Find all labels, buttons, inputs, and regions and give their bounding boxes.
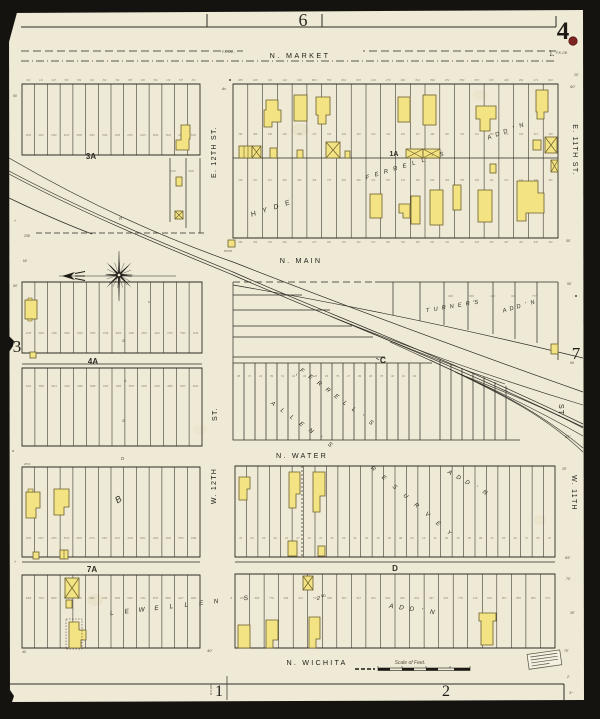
svg-text:09: 09 <box>273 536 277 540</box>
svg-text:784: 784 <box>327 78 332 82</box>
svg-text:537: 537 <box>179 79 184 82</box>
svg-text:527: 527 <box>356 596 361 600</box>
svg-text:C: C <box>380 355 386 365</box>
svg-text:ST.: ST. <box>557 404 564 418</box>
svg-text:957: 957 <box>502 596 507 600</box>
svg-text:810: 810 <box>283 179 288 182</box>
svg-text:534: 534 <box>77 79 82 82</box>
svg-text:50': 50' <box>567 282 572 286</box>
svg-text:346: 346 <box>283 133 288 136</box>
svg-text:33: 33 <box>303 374 307 378</box>
svg-text:49: 49 <box>445 536 449 540</box>
svg-text:+: + <box>14 560 16 564</box>
svg-text:338: 338 <box>549 133 554 136</box>
svg-text:4: 4 <box>557 18 570 45</box>
svg-text:208: 208 <box>474 179 480 182</box>
svg-text:7543: 7543 <box>180 332 186 335</box>
svg-text:801: 801 <box>298 179 303 182</box>
svg-text:4823: 4823 <box>180 385 186 388</box>
svg-text:770: 770 <box>458 596 463 600</box>
svg-text:7816: 7816 <box>166 134 172 137</box>
svg-text:Av: Av <box>221 87 226 91</box>
svg-text:3158: 3158 <box>103 332 109 335</box>
svg-text:2351: 2351 <box>126 134 133 137</box>
svg-text:822: 822 <box>548 78 553 82</box>
svg-text:139: 139 <box>166 79 171 82</box>
svg-text:S: S <box>122 338 125 343</box>
svg-text:0805: 0805 <box>191 597 197 600</box>
svg-text:106: 106 <box>519 133 524 136</box>
svg-text:131: 131 <box>39 79 44 82</box>
svg-text:3A: 3A <box>86 152 96 161</box>
svg-text:991: 991 <box>327 241 332 244</box>
svg-text:89: 89 <box>270 374 274 378</box>
svg-text:20': 20' <box>561 467 567 471</box>
svg-text:687: 687 <box>386 179 391 182</box>
svg-text:247: 247 <box>252 179 258 182</box>
svg-text:634: 634 <box>487 596 492 600</box>
svg-text:29: 29 <box>341 536 346 540</box>
svg-text:96: 96 <box>399 536 403 540</box>
svg-text:564: 564 <box>154 79 159 82</box>
svg-text:8908: 8908 <box>77 134 83 137</box>
svg-text:0366: 0366 <box>191 537 197 540</box>
svg-text:01: 01 <box>402 374 406 378</box>
svg-text:6417: 6417 <box>178 597 184 600</box>
svg-text:N. WICHITA: N. WICHITA <box>287 658 348 667</box>
svg-text:391: 391 <box>519 78 524 82</box>
svg-text:015: 015 <box>489 78 494 82</box>
svg-text:00: 00 <box>251 536 255 540</box>
svg-text:182: 182 <box>460 241 465 244</box>
svg-text:23: 23 <box>284 536 289 540</box>
svg-text:s: s <box>148 300 150 304</box>
svg-text:192: 192 <box>90 79 95 82</box>
svg-text:549: 549 <box>385 596 390 600</box>
svg-text:6629: 6629 <box>193 385 199 388</box>
svg-text:51: 51 <box>281 374 285 378</box>
svg-text:052: 052 <box>549 241 554 244</box>
svg-text:784: 784 <box>401 241 406 244</box>
svg-text:3166: 3166 <box>166 537 172 540</box>
svg-text:E. 11TH ST.: E. 11TH ST. <box>571 124 578 176</box>
svg-text:4656: 4656 <box>167 385 173 388</box>
svg-text:5982: 5982 <box>64 332 70 335</box>
svg-text:1: 1 <box>215 683 223 700</box>
svg-text:837: 837 <box>444 596 449 600</box>
svg-text:5876: 5876 <box>178 537 184 540</box>
svg-text:7A: 7A <box>87 565 97 574</box>
svg-text:N. WATER: N. WATER <box>276 451 328 460</box>
svg-text:91: 91 <box>353 536 357 540</box>
svg-text:14: 14 <box>259 374 263 378</box>
svg-text:602: 602 <box>342 179 347 182</box>
svg-text:034: 034 <box>26 79 31 82</box>
svg-text:628: 628 <box>240 596 245 600</box>
svg-text:669: 669 <box>312 78 317 82</box>
svg-text:0733: 0733 <box>167 332 173 335</box>
svg-text:542: 542 <box>386 241 391 244</box>
svg-text:776: 776 <box>269 596 274 600</box>
svg-text:6159: 6159 <box>141 385 147 388</box>
svg-text:F.K.Off..: F.K.Off.. <box>556 51 569 55</box>
svg-text:63: 63 <box>411 536 415 540</box>
svg-text:234: 234 <box>400 179 406 182</box>
svg-text:86: 86 <box>479 536 483 540</box>
svg-text:3~: 3~ <box>569 690 574 695</box>
svg-text:995: 995 <box>511 294 516 298</box>
svg-text:122: 122 <box>282 78 287 82</box>
svg-text:27: 27 <box>295 536 300 540</box>
svg-text:009: 009 <box>445 179 450 182</box>
svg-text:60': 60' <box>13 284 18 288</box>
svg-text:4060: 4060 <box>116 385 122 388</box>
svg-text:353: 353 <box>268 241 273 244</box>
svg-text:76: 76 <box>380 374 384 378</box>
svg-text:47.9: 47.9 <box>24 462 30 466</box>
svg-text:710: 710 <box>268 78 273 82</box>
svg-text:311: 311 <box>475 133 479 136</box>
svg-text:965: 965 <box>238 78 243 82</box>
svg-text:70': 70' <box>566 577 571 581</box>
svg-text:6537: 6537 <box>153 597 159 600</box>
svg-text:801: 801 <box>341 78 346 82</box>
svg-text:R.K.Off...: R.K.Off... <box>209 682 213 695</box>
svg-text:69: 69 <box>358 374 362 378</box>
svg-text:2940: 2940 <box>63 385 70 388</box>
svg-text:3: 3 <box>13 337 22 356</box>
svg-text:8317: 8317 <box>38 537 44 540</box>
svg-text:098: 098 <box>342 133 347 136</box>
svg-text:1693: 1693 <box>103 385 109 388</box>
svg-text:489: 489 <box>253 133 258 136</box>
svg-text:8687: 8687 <box>77 537 83 540</box>
svg-text:814: 814 <box>415 78 420 82</box>
svg-text:5148: 5148 <box>154 385 160 388</box>
svg-text:3036: 3036 <box>193 332 199 335</box>
svg-text:F.K.Off...: F.K.Off... <box>222 50 236 54</box>
svg-text:831: 831 <box>414 596 419 600</box>
svg-text:40: 40 <box>22 650 26 654</box>
svg-text:713: 713 <box>312 133 317 136</box>
svg-text:258: 258 <box>23 234 30 238</box>
svg-text:32: 32 <box>391 374 395 378</box>
svg-text:945: 945 <box>284 596 289 600</box>
svg-text:70': 70' <box>564 649 569 653</box>
svg-text:449: 449 <box>475 241 480 244</box>
svg-text:45: 45 <box>331 536 335 540</box>
svg-text:726: 726 <box>238 179 243 182</box>
svg-text:513: 513 <box>371 241 376 244</box>
svg-text:183: 183 <box>342 241 347 244</box>
svg-text:51: 51 <box>491 536 495 540</box>
svg-text:309: 309 <box>416 179 421 182</box>
svg-text:A: A <box>388 603 394 611</box>
svg-text:3218: 3218 <box>38 134 44 137</box>
svg-text:430: 430 <box>504 78 509 82</box>
svg-text:030: 030 <box>141 79 146 82</box>
svg-text:347: 347 <box>416 133 421 136</box>
svg-text:2654: 2654 <box>114 134 121 137</box>
svg-text:996: 996 <box>327 596 332 600</box>
svg-text:980: 980 <box>416 241 421 244</box>
svg-text:5053: 5053 <box>90 332 96 335</box>
svg-text:S: S <box>122 418 125 423</box>
svg-text:63: 63 <box>413 374 417 378</box>
svg-text:W. 11TH: W. 11TH <box>570 475 577 511</box>
svg-text:647: 647 <box>52 79 57 82</box>
svg-text:19: 19 <box>376 536 380 540</box>
svg-text:606: 606 <box>357 179 362 182</box>
svg-text:03: 03 <box>325 374 329 378</box>
svg-text:0133: 0133 <box>64 134 70 137</box>
svg-text:1043: 1043 <box>26 134 32 137</box>
svg-text:913: 913 <box>504 179 509 182</box>
svg-text:832: 832 <box>103 79 108 82</box>
svg-text:30': 30' <box>570 611 575 615</box>
svg-text:31: 31 <box>239 536 243 540</box>
svg-text:17: 17 <box>347 374 351 378</box>
svg-text:4238: 4238 <box>170 170 176 173</box>
svg-text:6688: 6688 <box>51 597 57 600</box>
svg-text:60': 60' <box>570 84 575 89</box>
svg-text:382: 382 <box>430 133 435 136</box>
svg-text:4278: 4278 <box>26 332 32 335</box>
svg-text:71: 71 <box>525 536 529 540</box>
svg-text:699: 699 <box>238 241 243 244</box>
svg-text:65': 65' <box>565 555 570 560</box>
svg-text:19: 19 <box>422 536 426 540</box>
svg-text:+: + <box>14 219 16 223</box>
svg-text:7298: 7298 <box>102 597 108 600</box>
svg-text:788: 788 <box>460 179 465 182</box>
svg-text:7940: 7940 <box>102 134 108 137</box>
svg-text:8496: 8496 <box>188 170 194 173</box>
svg-text:24: 24 <box>364 536 369 540</box>
svg-text:38: 38 <box>237 374 241 378</box>
svg-text:3863: 3863 <box>89 134 95 137</box>
svg-text:1A: 1A <box>390 151 399 158</box>
svg-text:1965: 1965 <box>77 385 83 388</box>
svg-text:518: 518 <box>401 133 406 136</box>
svg-text:672: 672 <box>192 79 197 82</box>
svg-text:4216: 4216 <box>154 332 160 335</box>
svg-text:65: 65 <box>536 536 540 540</box>
svg-text:367: 367 <box>429 596 434 600</box>
svg-text:a: a <box>12 449 14 453</box>
svg-text:436: 436 <box>490 294 495 298</box>
svg-text:121: 121 <box>490 179 495 182</box>
svg-text:0162: 0162 <box>127 597 133 600</box>
svg-text:482: 482 <box>401 78 406 82</box>
svg-text:19: 19 <box>308 536 312 540</box>
svg-text:06: 06 <box>513 536 517 540</box>
svg-text:2: 2 <box>442 683 450 700</box>
svg-text:37: 37 <box>319 536 323 540</box>
svg-text:376: 376 <box>460 133 465 136</box>
svg-text:317: 317 <box>268 179 273 182</box>
svg-text:20': 20' <box>573 73 579 77</box>
svg-text:9096: 9096 <box>26 597 32 600</box>
svg-text:842: 842 <box>357 241 362 244</box>
svg-text:6801: 6801 <box>39 332 45 335</box>
svg-text:893: 893 <box>430 78 435 82</box>
svg-text:328: 328 <box>253 78 258 82</box>
svg-text:315: 315 <box>327 133 332 136</box>
svg-text:8835: 8835 <box>129 385 135 388</box>
svg-text:60: 60 <box>13 94 17 98</box>
svg-text:854: 854 <box>253 241 258 244</box>
svg-text:W. 12TH: W. 12TH <box>211 468 218 504</box>
svg-text:507: 507 <box>342 596 347 600</box>
svg-text:143: 143 <box>473 596 478 600</box>
svg-text:782: 782 <box>238 133 243 136</box>
svg-text:354: 354 <box>371 596 376 600</box>
svg-text:4A: 4A <box>88 357 98 366</box>
svg-text:5698: 5698 <box>90 385 96 388</box>
svg-text:5812: 5812 <box>140 537 146 540</box>
svg-text:691: 691 <box>297 78 302 82</box>
svg-text:31: 31 <box>433 536 437 540</box>
svg-text:841: 841 <box>430 241 435 244</box>
svg-text:19: 19 <box>456 536 460 540</box>
svg-text:2563: 2563 <box>140 332 147 335</box>
svg-text:5564: 5564 <box>166 597 172 600</box>
svg-text:3471: 3471 <box>115 537 121 540</box>
svg-text:513: 513 <box>534 133 539 136</box>
svg-text:474: 474 <box>371 179 376 182</box>
svg-text:'S: 'S <box>473 300 479 307</box>
svg-text:6204: 6204 <box>77 332 83 335</box>
svg-text:241: 241 <box>444 241 450 244</box>
svg-text:640: 640 <box>534 241 539 244</box>
svg-text:9579: 9579 <box>64 537 70 540</box>
svg-text:525: 525 <box>65 79 70 82</box>
svg-text:578: 578 <box>298 133 303 136</box>
svg-text:146: 146 <box>371 78 376 82</box>
svg-text:957: 957 <box>474 78 479 82</box>
svg-text:480: 480 <box>400 596 405 600</box>
svg-text:65': 65' <box>565 434 570 439</box>
svg-text:310: 310 <box>386 133 391 136</box>
svg-text:72: 72 <box>248 374 252 378</box>
svg-text:34: 34 <box>292 374 296 378</box>
svg-text:462: 462 <box>283 241 288 244</box>
svg-text:N. MAIN: N. MAIN <box>280 256 323 265</box>
svg-text:1615: 1615 <box>140 134 146 137</box>
svg-text:764: 764 <box>115 79 120 82</box>
svg-text:6562: 6562 <box>89 597 95 600</box>
svg-text:D: D <box>392 564 398 573</box>
svg-text:ND: ND <box>321 594 326 598</box>
svg-text:997: 997 <box>445 133 450 136</box>
svg-text:E. 12TH ST.: E. 12TH ST. <box>211 126 218 178</box>
svg-text:40': 40' <box>207 648 212 653</box>
svg-text:171: 171 <box>533 78 538 82</box>
svg-text:3487: 3487 <box>102 537 108 540</box>
svg-text:475: 475 <box>298 241 303 244</box>
svg-text:638: 638 <box>268 133 273 136</box>
svg-text:805: 805 <box>430 179 435 182</box>
svg-text:777: 777 <box>532 294 537 298</box>
svg-text:2260: 2260 <box>128 332 135 335</box>
svg-text:685: 685 <box>531 596 536 600</box>
svg-text:85: 85 <box>502 536 506 540</box>
svg-text:393: 393 <box>357 133 362 136</box>
svg-text:835: 835 <box>128 79 133 82</box>
svg-text:7204: 7204 <box>140 597 146 600</box>
svg-text:804: 804 <box>469 294 474 298</box>
svg-text:091: 091 <box>549 179 554 182</box>
svg-text:Scale of Feet.: Scale of Feet. <box>395 660 426 666</box>
svg-text:574: 574 <box>545 596 550 600</box>
svg-text:5414: 5414 <box>26 385 32 388</box>
svg-text:05: 05 <box>468 536 472 540</box>
svg-text:270: 270 <box>385 78 391 82</box>
svg-text:7054: 7054 <box>38 597 44 600</box>
svg-text:04: 04 <box>388 536 392 540</box>
svg-text:50': 50' <box>566 239 571 243</box>
svg-text:60: 60 <box>570 361 574 365</box>
svg-text:353: 353 <box>490 241 495 244</box>
svg-text:36: 36 <box>369 374 373 378</box>
svg-text:5931: 5931 <box>191 134 197 137</box>
svg-text:33: 33 <box>262 536 266 540</box>
svg-text:0699: 0699 <box>115 597 121 600</box>
svg-text:2870: 2870 <box>25 537 32 540</box>
svg-text:5868: 5868 <box>39 385 45 388</box>
svg-text:72: 72 <box>548 536 552 540</box>
svg-text:401: 401 <box>519 241 524 244</box>
svg-text:P.P.Off: P.P.Off <box>224 249 232 253</box>
svg-text:946: 946 <box>448 294 453 298</box>
svg-text:79: 79 <box>336 374 340 378</box>
svg-text:010: 010 <box>371 133 376 136</box>
svg-text:252: 252 <box>444 78 450 82</box>
svg-text:2': 2' <box>566 675 570 679</box>
svg-text:6923: 6923 <box>116 332 122 335</box>
svg-text:773: 773 <box>327 179 332 182</box>
svg-text:498: 498 <box>254 596 259 600</box>
svg-text:2362: 2362 <box>152 537 159 540</box>
svg-text:487: 487 <box>504 241 509 244</box>
svg-text:ST.: ST. <box>212 407 219 421</box>
svg-text:2: 2 <box>316 596 320 602</box>
svg-text:1280: 1280 <box>51 332 57 335</box>
svg-text:2774: 2774 <box>88 537 95 540</box>
svg-text:326: 326 <box>312 179 317 182</box>
svg-text:107: 107 <box>312 241 317 244</box>
svg-text:5940: 5940 <box>153 134 159 137</box>
svg-text:880: 880 <box>460 78 465 82</box>
svg-text:5014: 5014 <box>51 385 57 388</box>
svg-text:N. MARKET: N. MARKET <box>270 51 331 60</box>
svg-text:845: 845 <box>356 78 361 82</box>
svg-text:1960: 1960 <box>51 134 57 137</box>
svg-text:2788: 2788 <box>50 537 57 540</box>
svg-text:885: 885 <box>516 596 521 600</box>
svg-text:4345: 4345 <box>127 537 133 540</box>
svg-text:314: 314 <box>298 596 303 600</box>
